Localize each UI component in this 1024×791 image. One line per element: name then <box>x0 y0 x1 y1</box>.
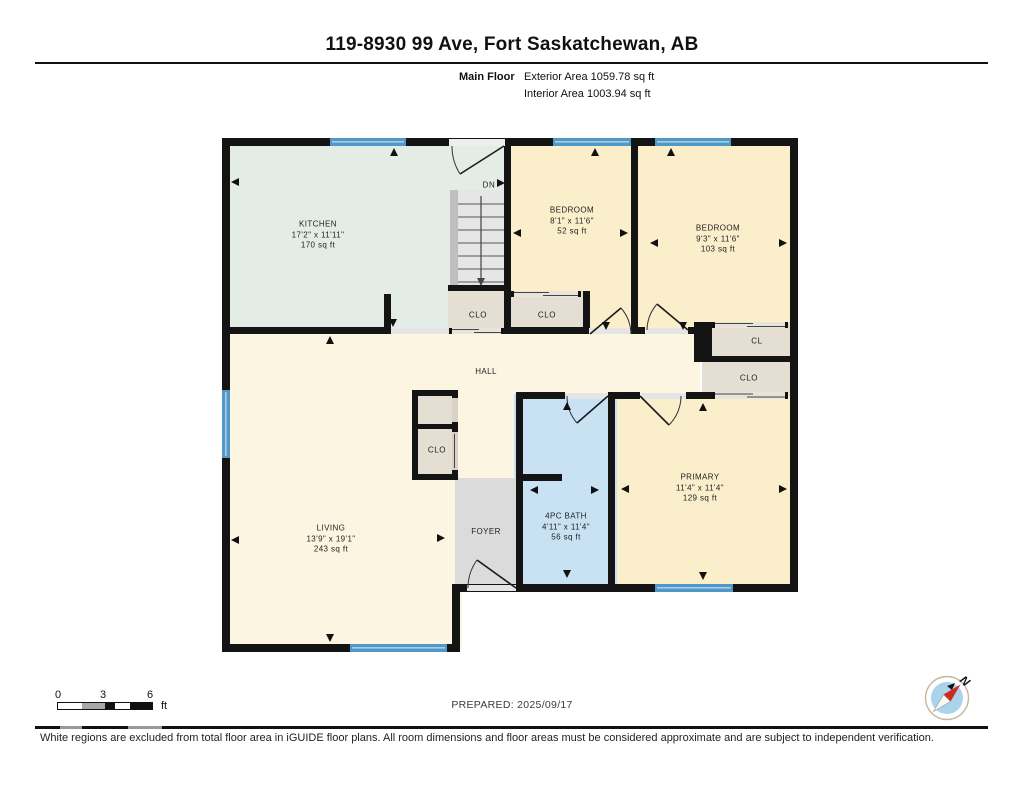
room-label-primary: PRIMARY 11'4" x 11'4" 129 sq ft <box>676 472 724 504</box>
prepared-date: PREPARED: 2025/09/17 <box>0 699 1024 711</box>
room-name: BEDROOM <box>696 223 740 234</box>
room-label-bedroom-2: BEDROOM 9'3" x 11'6" 103 sq ft <box>696 223 740 255</box>
room-dims: 17'2" x 11'11" <box>292 230 345 241</box>
room-name: PRIMARY <box>676 472 724 483</box>
room-dims: 4'11" x 11'4" <box>542 522 590 533</box>
room-name: LIVING <box>306 523 355 534</box>
room-area: 52 sq ft <box>550 226 594 237</box>
room-label-foyer: FOYER <box>471 527 501 538</box>
closet-label: CL <box>751 337 762 346</box>
room-name: HALL <box>475 367 497 378</box>
compass: N <box>918 664 990 724</box>
room-name: KITCHEN <box>292 219 345 230</box>
room-area: 129 sq ft <box>676 493 724 504</box>
closet-label: CLO <box>740 374 758 383</box>
room-dims: 8'1" x 11'6" <box>550 216 594 227</box>
floorplan-page: 119-8930 99 Ave, Fort Saskatchewan, AB M… <box>0 0 1024 791</box>
room-label-bath: 4PC BATH 4'11" x 11'4" 56 sq ft <box>542 511 590 543</box>
room-name: 4PC BATH <box>542 511 590 522</box>
room-area: 103 sq ft <box>696 244 740 255</box>
room-area: 170 sq ft <box>292 240 345 251</box>
room-label-hall: HALL <box>475 367 497 378</box>
room-dims: 9'3" x 11'6" <box>696 234 740 245</box>
closet-label: CLO <box>538 311 556 320</box>
room-dims: 13'9" x 19'1" <box>306 534 355 545</box>
floor-plan <box>0 0 1024 791</box>
closet-label: CLO <box>469 311 487 320</box>
closet-label: CLO <box>428 446 446 455</box>
stairs-down-label: DN <box>483 181 496 190</box>
footer-rule-segment <box>128 726 162 729</box>
disclaimer-text: White regions are excluded from total fl… <box>40 732 960 744</box>
room-label-kitchen: KITCHEN 17'2" x 11'11" 170 sq ft <box>292 219 345 251</box>
room-label-bedroom-1: BEDROOM 8'1" x 11'6" 52 sq ft <box>550 205 594 237</box>
room-dims: 11'4" x 11'4" <box>676 483 724 494</box>
room-name: BEDROOM <box>550 205 594 216</box>
room-area: 243 sq ft <box>306 544 355 555</box>
footer-rule-segment <box>60 726 82 729</box>
room-label-living: LIVING 13'9" x 19'1" 243 sq ft <box>306 523 355 555</box>
room-area: 56 sq ft <box>542 532 590 543</box>
room-name: FOYER <box>471 527 501 538</box>
footer-rule <box>35 726 988 729</box>
stairs <box>450 190 505 290</box>
